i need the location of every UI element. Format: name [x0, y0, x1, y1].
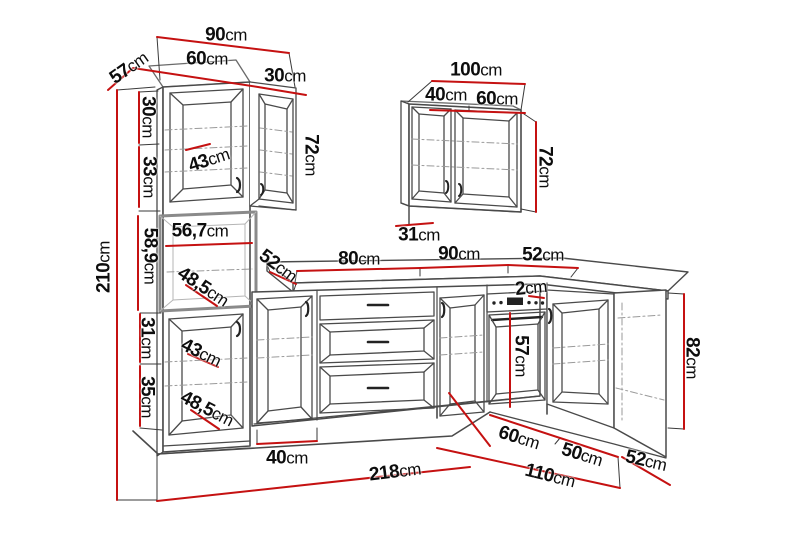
dim-niche-width: 56,7cm	[172, 222, 229, 241]
dim-niche-height: 58,9cm	[141, 228, 160, 285]
dim-tall-top-width: 90cm	[205, 26, 247, 45]
dim-lower-section-a: 31cm	[138, 317, 157, 359]
dim-wall-left-height: 72cm	[302, 134, 321, 176]
dim-tall-front-width: 60cm	[186, 50, 228, 69]
dim-wall-right-door-b: 60cm	[476, 90, 518, 109]
base-run-drawing	[252, 283, 547, 426]
dim-upper-section-b: 33cm	[140, 156, 159, 198]
dim-counter-thickness: 2cm	[514, 277, 548, 299]
dim-total-height: 210cm	[95, 241, 114, 293]
dim-wall-right-depth: 31cm	[398, 226, 440, 245]
dim-counter-span-c: 52cm	[522, 246, 564, 265]
dim-counter-span-b: 90cm	[438, 245, 480, 264]
dim-oven-height: 57cm	[512, 335, 531, 377]
dim-lower-section-b: 35cm	[138, 376, 157, 418]
dim-base-door-width: 40cm	[266, 449, 308, 468]
dim-wall-right-door-a: 40cm	[425, 86, 467, 105]
dim-upper-section-a: 30cm	[139, 96, 158, 138]
wall-cabinet-30-drawing	[250, 82, 296, 210]
dim-wall-right-width: 100cm	[450, 61, 502, 80]
dim-wall-left-width: 30cm	[264, 67, 306, 86]
kitchen-dimension-diagram: 90cm 60cm 30cm 57cm 30cm 33cm 43cm 72cm …	[0, 0, 800, 533]
wall-cabinet-100-drawing	[401, 101, 521, 224]
dim-counter-span-a: 80cm	[338, 250, 380, 269]
dim-base-height: 82cm	[683, 337, 702, 379]
dim-wall-right-height: 72cm	[536, 146, 555, 188]
